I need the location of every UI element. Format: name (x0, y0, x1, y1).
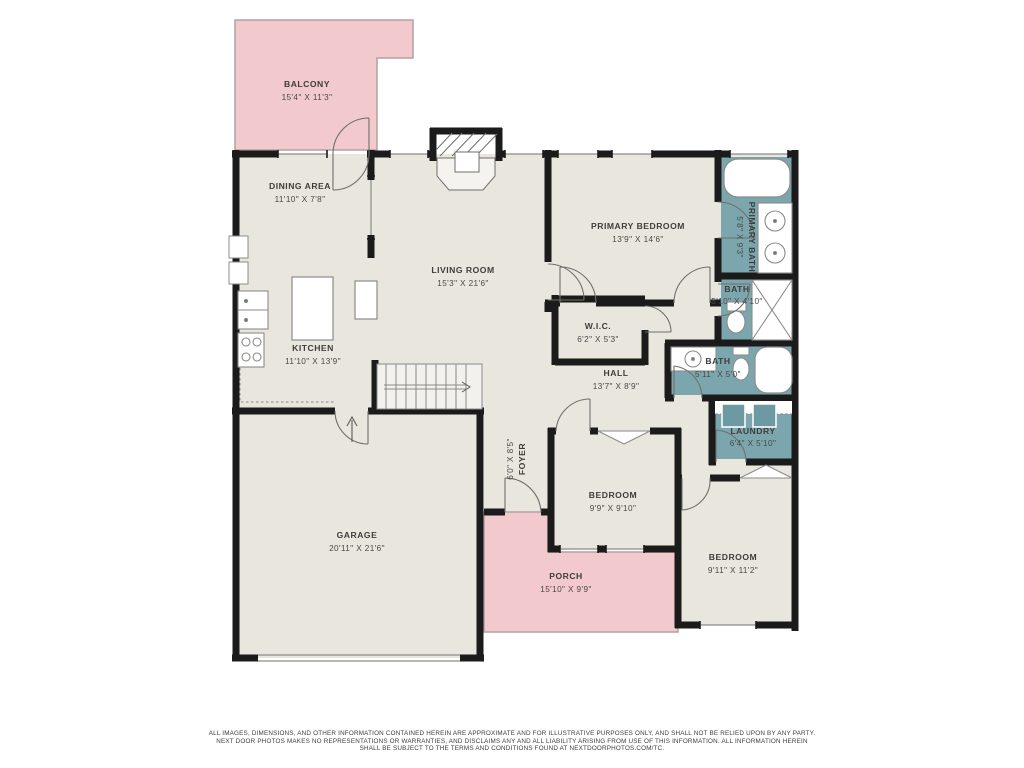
room-dims: 13'7" X 8'9" (593, 382, 640, 391)
room-dims: 5'10" X 4'10" (711, 297, 762, 306)
room-name: FOYER (517, 443, 527, 475)
room-dims: 13'9" X 14'6" (612, 235, 663, 244)
room-name: BALCONY (284, 79, 330, 89)
toilet-upper (727, 302, 746, 333)
foyer-floor (484, 411, 548, 512)
room-dims: 11'10" X 13'9" (285, 357, 341, 366)
room-dims: 5'11" X 5'0" (695, 370, 741, 379)
room-dims: 6'2" X 5'3" (577, 335, 619, 344)
room-name: PRIMARY BEDROOM (591, 221, 685, 231)
disclaimer: ALL IMAGES, DIMENSIONS, AND OTHER INFORM… (0, 730, 1024, 753)
room-name: DINING AREA (269, 181, 331, 191)
floor-plan-page: BALCONY 15'4" X 11'3" DINING AREA 11'10"… (0, 0, 1024, 768)
stove (238, 333, 264, 367)
room-name: HALL (604, 368, 629, 378)
primary-bathtub (724, 159, 790, 197)
room-dims: 11'10" X 7'8" (275, 195, 326, 204)
disclaimer-line-3: SHALL BE SUBJECT TO THE TERMS AND CONDIT… (0, 745, 1024, 753)
label-foyer: FOYER 6'0" X 8'5" (506, 438, 527, 480)
room-dims: 15'10" X 9'9" (540, 585, 591, 594)
fireplace (436, 133, 497, 190)
room-name: BATH (724, 284, 749, 294)
room-dims: 15'4" X 11'3" (282, 93, 333, 102)
room-name: PRIMARY BATH (747, 202, 757, 273)
kitchen-island (292, 277, 333, 340)
room-dims: 15'3" X 21'6" (437, 279, 488, 288)
room-name: LIVING ROOM (431, 265, 494, 275)
room-name: W.I.C. (585, 321, 611, 331)
room-dims: 20'11" X 21'6" (329, 544, 385, 553)
room-dims: 9'9" X 9'10" (590, 504, 637, 513)
disclaimer-line-1: ALL IMAGES, DIMENSIONS, AND OTHER INFORM… (0, 730, 1024, 738)
stairs (377, 364, 482, 409)
room-dims: 6'0" X 8'5" (506, 438, 515, 480)
room-dims: 5'8" X 9'3" (735, 216, 744, 258)
room-dims: 6'4" X 5'10" (730, 439, 777, 448)
room-name: KITCHEN (292, 343, 334, 353)
room-name: PORCH (549, 571, 583, 581)
room-name: LAUNDRY (730, 426, 775, 436)
primary-vanity (758, 203, 792, 273)
room-name: BEDROOM (709, 552, 757, 562)
room-name: BEDROOM (589, 490, 637, 500)
bathtub-lower (755, 347, 792, 393)
room-dims: 9'11" X 11'2" (708, 566, 758, 575)
room-name: BATH (705, 356, 730, 366)
kitchen-sink (238, 291, 268, 329)
floor-plan-canvas: BALCONY 15'4" X 11'3" DINING AREA 11'10"… (0, 0, 1024, 768)
room-name: GARAGE (337, 530, 378, 540)
shower (752, 280, 792, 340)
disclaimer-line-2: NEXT DOOR PHOTOS MAKES NO REPRESENTATION… (0, 738, 1024, 746)
refrigerator (355, 281, 377, 319)
